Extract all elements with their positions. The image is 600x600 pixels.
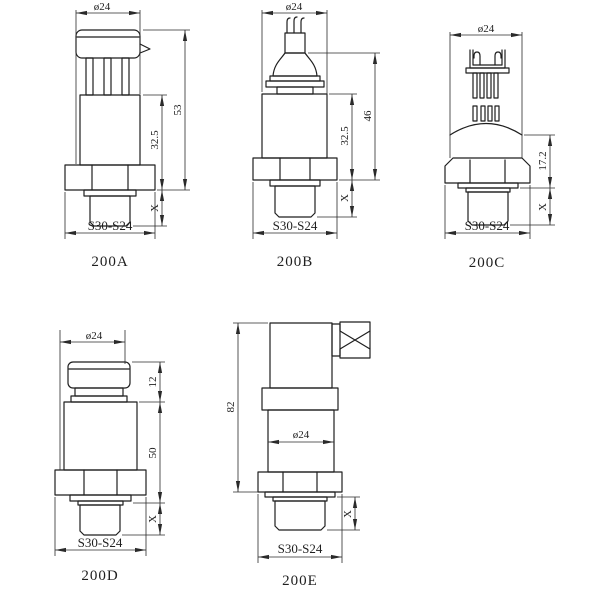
dim-wrench-label: S30-S24 [278, 541, 323, 556]
washer [265, 492, 335, 501]
thread-stub [275, 501, 325, 530]
dim-wrench-label: S30-S24 [273, 218, 318, 233]
hex-nut [258, 472, 342, 492]
figure-200a: ø24 53 32.5 X S30-S24 200A [40, 0, 210, 275]
dimension-lines [253, 13, 375, 233]
extension-lines [253, 10, 380, 239]
washer [70, 495, 131, 505]
hex-nut [445, 158, 530, 183]
sensor-body [268, 410, 334, 472]
dim-height-label: 17.2 [537, 151, 549, 170]
dim-thread-label: X [342, 510, 354, 518]
bell-cap [273, 53, 317, 76]
sensor-body [262, 94, 327, 158]
drawing-200e: 82 ø24 X S30-S24 200E [225, 300, 410, 595]
connector-cap [68, 362, 130, 402]
figure-caption: 200C [469, 255, 506, 271]
dim-thread-label: X [147, 515, 159, 523]
dim-width-label: ø24 [86, 330, 103, 342]
dim-wrench-label: S30-S24 [465, 218, 510, 233]
dim-wrench-label: S30-S24 [78, 535, 123, 550]
drawing-sheet: ø24 53 32.5 X S30-S24 200A [0, 0, 600, 600]
dim-thread-label: X [339, 194, 351, 202]
dimension-lines [65, 13, 185, 233]
dim-wrench-label: S30-S24 [88, 218, 133, 233]
dimension-lines [55, 342, 160, 550]
cable-gland [332, 322, 370, 358]
dim-width-label: ø24 [478, 23, 495, 35]
short-pins [473, 106, 499, 121]
upper-collar [262, 388, 338, 410]
dome-cap [450, 124, 522, 136]
figure-caption: 200E [282, 573, 318, 589]
drawing-200a: ø24 53 32.5 X S30-S24 200A [40, 0, 210, 275]
dim-overall-label: 82 [225, 402, 237, 413]
figure-200b: ø24 46 32.5 X S30-S24 200B [230, 0, 400, 275]
drawing-200b: ø24 46 32.5 X S30-S24 200B [230, 0, 400, 275]
dim-overall-label: 46 [362, 110, 374, 122]
thread-stub [80, 505, 120, 535]
lead-wires [287, 17, 304, 33]
figure-200e: 82 ø24 X S30-S24 200E [225, 300, 410, 595]
connector-cap [76, 30, 150, 58]
dim-overall-label: 53 [172, 104, 184, 116]
thread-stub [275, 186, 315, 217]
dim-body-label: 32.5 [149, 130, 161, 150]
hex-nut [65, 165, 155, 190]
figure-caption: 200B [277, 254, 314, 270]
washer [84, 190, 136, 196]
dim-body-label: 50 [147, 447, 159, 459]
drawing-200d: ø24 12 50 X S30-S24 200D [40, 320, 215, 590]
long-pins [473, 73, 498, 98]
dim-thread-label: X [149, 204, 161, 212]
figure-caption: 200A [91, 254, 128, 270]
connector-flange [466, 68, 509, 73]
flange-rings [266, 76, 324, 94]
dim-connector-label: 12 [147, 377, 159, 388]
drawing-200c: ø24 17.2 X S30-S24 200C [420, 20, 595, 275]
dim-width-label: ø24 [293, 429, 310, 441]
washer [270, 180, 320, 186]
extension-lines [65, 10, 190, 239]
figure-200d: ø24 12 50 X S30-S24 200D [40, 320, 215, 590]
dim-thread-label: X [537, 203, 549, 211]
connector-head [270, 323, 332, 388]
sensor-body [64, 402, 137, 470]
wire-tube [285, 33, 305, 53]
connector-shell [470, 50, 505, 68]
dim-width-label: ø24 [94, 1, 111, 13]
figure-caption: 200D [81, 568, 118, 584]
dim-body-label: 32.5 [339, 126, 351, 146]
sensor-body [80, 95, 140, 165]
washer [458, 183, 518, 192]
figure-200c: ø24 17.2 X S30-S24 200C [420, 20, 595, 275]
dim-width-label: ø24 [286, 1, 303, 13]
extension-lines [233, 323, 360, 563]
hex-nut [253, 158, 337, 180]
hex-nut [55, 470, 146, 495]
connector-pins [86, 58, 129, 95]
